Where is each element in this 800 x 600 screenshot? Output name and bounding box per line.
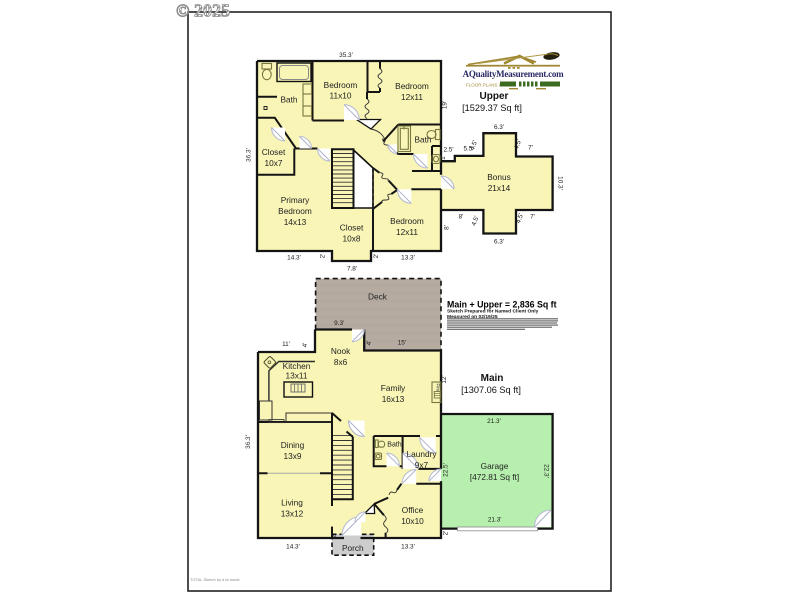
svg-text:22.3': 22.3' bbox=[543, 464, 550, 478]
svg-text:Porch: Porch bbox=[342, 543, 364, 553]
svg-text:Living: Living bbox=[281, 498, 303, 508]
svg-text:2.5': 2.5' bbox=[443, 147, 453, 154]
svg-text:11': 11' bbox=[282, 341, 290, 348]
svg-text:36.3': 36.3' bbox=[245, 435, 252, 449]
svg-text:14.3': 14.3' bbox=[287, 255, 301, 262]
svg-text:Deck: Deck bbox=[368, 292, 388, 302]
svg-text:2': 2' bbox=[331, 534, 338, 539]
svg-text:8x6: 8x6 bbox=[334, 357, 348, 367]
svg-text:Bedroom: Bedroom bbox=[390, 216, 424, 226]
svg-text:Laundry: Laundry bbox=[407, 449, 438, 459]
svg-text:6.3': 6.3' bbox=[494, 124, 504, 131]
svg-text:13x11: 13x11 bbox=[286, 371, 308, 381]
svg-text:14.3': 14.3' bbox=[286, 544, 300, 551]
svg-text:Bath: Bath bbox=[280, 95, 297, 105]
svg-text:Bath: Bath bbox=[387, 442, 402, 449]
svg-text:Primary: Primary bbox=[281, 195, 310, 205]
svg-text:7': 7' bbox=[530, 214, 535, 221]
svg-text:Kitchen: Kitchen bbox=[283, 361, 311, 371]
svg-text:11x10: 11x10 bbox=[330, 91, 352, 101]
svg-text:36.3': 36.3' bbox=[246, 148, 253, 162]
svg-text:13x9: 13x9 bbox=[284, 451, 302, 461]
svg-text:Bonus: Bonus bbox=[487, 172, 511, 182]
svg-text:© 2025: © 2025 bbox=[176, 1, 230, 21]
svg-text:21.3': 21.3' bbox=[487, 418, 501, 425]
svg-text:AQualityMeasurement.com: AQualityMeasurement.com bbox=[463, 69, 565, 79]
svg-text:Main + Upper = 2,836 Sq ft: Main + Upper = 2,836 Sq ft bbox=[447, 300, 557, 310]
svg-text:Office: Office bbox=[402, 505, 424, 515]
svg-text:[1529.37 Sq ft]: [1529.37 Sq ft] bbox=[462, 103, 522, 113]
svg-text:Bedroom: Bedroom bbox=[324, 80, 358, 90]
svg-text:7.8': 7.8' bbox=[347, 266, 357, 273]
svg-text:35.3': 35.3' bbox=[339, 52, 353, 59]
svg-text:Bedroom: Bedroom bbox=[395, 81, 429, 91]
svg-text:7': 7' bbox=[528, 145, 533, 152]
svg-text:Sketch Prepared for Named Clie: Sketch Prepared for Named Client Only bbox=[447, 309, 539, 315]
svg-text:5.5': 5.5' bbox=[463, 146, 473, 153]
svg-text:12x11: 12x11 bbox=[396, 227, 418, 237]
svg-text:Dining: Dining bbox=[281, 440, 305, 450]
svg-text:13.3': 13.3' bbox=[401, 544, 415, 551]
svg-text:13x12: 13x12 bbox=[281, 509, 304, 519]
svg-text:[1307.06 Sq ft]: [1307.06 Sq ft] bbox=[461, 385, 521, 395]
svg-text:15': 15' bbox=[398, 340, 406, 347]
svg-text:10.3': 10.3' bbox=[557, 176, 564, 190]
svg-text:10x7: 10x7 bbox=[265, 158, 283, 168]
svg-text:13.3': 13.3' bbox=[401, 255, 415, 262]
svg-text:8': 8' bbox=[459, 214, 464, 221]
svg-text:16x13: 16x13 bbox=[382, 394, 405, 404]
svg-text:FLOOR PLANS &: FLOOR PLANS & bbox=[466, 83, 502, 88]
svg-text:Fire: Fire bbox=[435, 384, 440, 392]
svg-text:Main: Main bbox=[481, 373, 504, 384]
svg-text:9x7: 9x7 bbox=[415, 460, 429, 470]
svg-text:2': 2' bbox=[442, 531, 449, 536]
svg-text:14x13: 14x13 bbox=[284, 217, 307, 227]
svg-text:4': 4' bbox=[366, 341, 373, 346]
svg-text:8': 8' bbox=[444, 225, 451, 230]
svg-text:TOTAL Sketch by a la mode: TOTAL Sketch by a la mode bbox=[190, 577, 241, 582]
svg-text:2': 2' bbox=[373, 254, 380, 259]
svg-text:Closet: Closet bbox=[340, 223, 364, 233]
svg-text:12x11: 12x11 bbox=[401, 92, 423, 102]
svg-text:Bedroom: Bedroom bbox=[278, 206, 312, 216]
svg-text:22.5': 22.5' bbox=[443, 463, 450, 477]
svg-text:2': 2' bbox=[319, 254, 326, 259]
svg-text:12': 12' bbox=[441, 375, 448, 383]
svg-text:Garage: Garage bbox=[481, 461, 509, 471]
svg-text:[472.81 Sq ft]: [472.81 Sq ft] bbox=[470, 472, 519, 482]
svg-text:Closet: Closet bbox=[262, 147, 286, 157]
svg-text:21x14: 21x14 bbox=[488, 183, 511, 193]
svg-text:10x8: 10x8 bbox=[343, 234, 361, 244]
svg-text:Nook: Nook bbox=[331, 346, 351, 356]
svg-text:Upper: Upper bbox=[480, 91, 509, 102]
svg-text:21.3': 21.3' bbox=[488, 517, 502, 524]
svg-text:Bath: Bath bbox=[414, 135, 431, 145]
svg-text:6.3': 6.3' bbox=[494, 239, 504, 246]
svg-text:10x10: 10x10 bbox=[401, 516, 424, 526]
svg-text:19': 19' bbox=[442, 101, 449, 109]
svg-text:Family: Family bbox=[381, 383, 406, 393]
svg-text:1': 1' bbox=[440, 155, 447, 160]
svg-text:4': 4' bbox=[302, 343, 309, 348]
svg-text:9.3': 9.3' bbox=[334, 320, 344, 327]
